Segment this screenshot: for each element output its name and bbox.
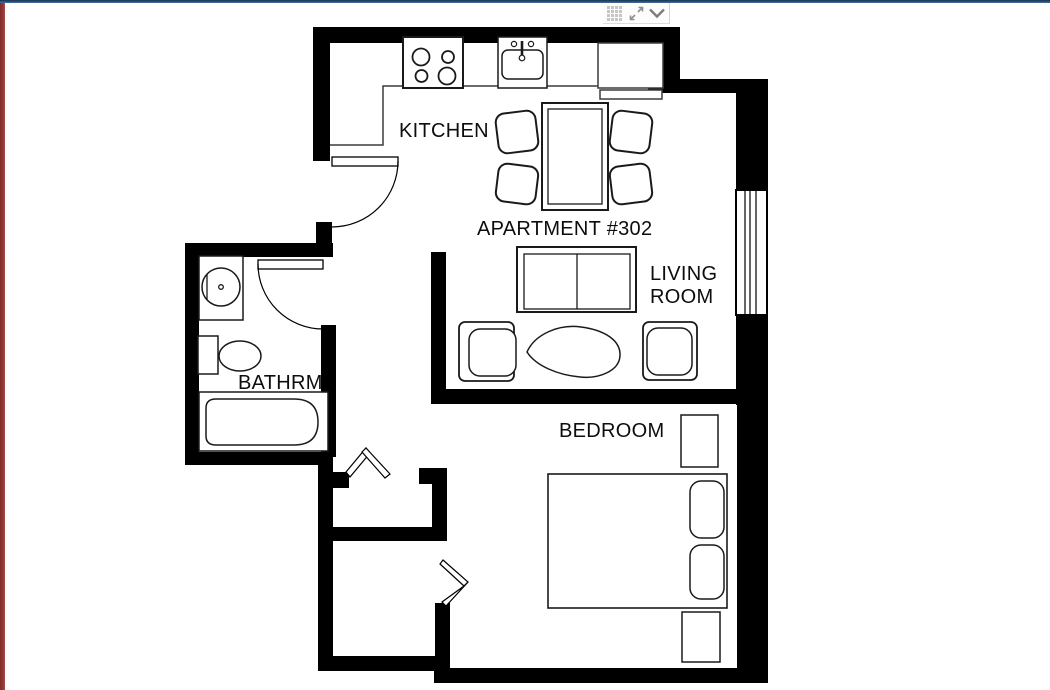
- wall-segment: [185, 243, 333, 257]
- floor-plan-viewer: KITCHEN APARTMENT #302 LIVING ROOM BATHR…: [0, 0, 1050, 690]
- dining-chair-icon: [495, 163, 539, 206]
- dining-chair-icon: [495, 110, 540, 155]
- stove-cooktop-icon: [403, 37, 463, 88]
- living-room-label-line1: LIVING: [650, 263, 717, 285]
- closet-angled-door: [346, 448, 390, 478]
- wall-segment: [318, 452, 333, 671]
- wall-segment: [333, 527, 447, 541]
- wall-segment: [737, 404, 768, 683]
- kitchen-sink-icon: [498, 37, 547, 88]
- wash-basin-icon: [199, 256, 243, 320]
- nightstand-icon: [681, 415, 718, 467]
- wall-segment: [419, 468, 447, 484]
- wall-segment: [185, 243, 199, 465]
- wall-segment: [333, 472, 349, 488]
- living-room-label-line2: ROOM: [650, 286, 713, 308]
- nightstand-icon: [682, 612, 720, 662]
- kitchen-door-swing: [332, 157, 398, 227]
- double-bed-icon: [548, 474, 727, 608]
- coffee-table-icon: [527, 326, 620, 377]
- toilet-icon: [198, 336, 261, 374]
- bedroom-label: BEDROOM: [559, 420, 664, 442]
- armchair-left-icon: [459, 322, 516, 381]
- bathroom-label: BATHRM: [238, 372, 323, 394]
- wall-segment: [431, 252, 446, 404]
- apartment-label: APARTMENT #302: [477, 218, 652, 240]
- pillow-icon: [690, 481, 724, 538]
- wall-segment: [435, 603, 450, 671]
- wall-segment: [431, 389, 768, 404]
- bedroom-angled-door: [440, 560, 468, 606]
- dining-table-icon: [542, 103, 608, 210]
- armchair-right-icon: [643, 322, 697, 380]
- wall-segment: [313, 27, 330, 161]
- floor-plan: KITCHEN APARTMENT #302 LIVING ROOM BATHR…: [0, 0, 1050, 690]
- dining-chair-icon: [609, 110, 654, 155]
- bathtub-icon: [199, 392, 328, 451]
- dining-chair-icon: [609, 163, 653, 206]
- pillow-icon: [690, 545, 724, 599]
- wall-segment: [185, 452, 333, 465]
- wall-segment: [313, 27, 680, 43]
- wall-segment: [434, 668, 768, 683]
- wall-segment: [316, 222, 332, 244]
- sofa-icon: [517, 247, 636, 312]
- kitchen-label: KITCHEN: [399, 120, 489, 142]
- window-symbol: [736, 190, 767, 315]
- bathroom-door-swing: [258, 260, 323, 329]
- wall-segment: [736, 79, 768, 192]
- wall-segment: [318, 656, 450, 671]
